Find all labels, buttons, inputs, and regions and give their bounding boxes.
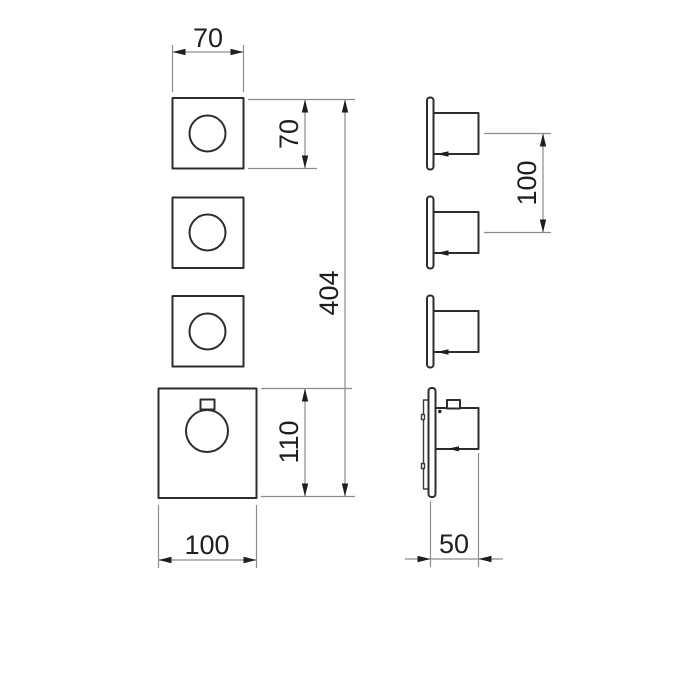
arrow-down-icon <box>540 220 546 233</box>
side-knob-body-1 <box>434 113 479 154</box>
side-thermostat-handle <box>422 388 479 497</box>
side-knob-body-3 <box>434 311 479 352</box>
main-plate <box>159 389 257 499</box>
dim-label-total-height: 404 <box>314 270 344 315</box>
arrow-down-icon <box>342 484 348 497</box>
dimension-handle-spacing: 100 <box>484 134 551 233</box>
side-main-plate <box>429 388 436 497</box>
arrow-down-icon <box>302 156 308 169</box>
side-knob-body-2 <box>434 212 479 253</box>
dim-label-small-plate-width: 70 <box>193 23 223 53</box>
dim-label-projection: 50 <box>439 529 469 559</box>
dimension-projection: 50 <box>405 453 503 567</box>
body-clip-top <box>422 415 425 420</box>
side-thermostat-body <box>436 408 479 449</box>
body-clip-bottom <box>422 464 425 469</box>
arrow-up-icon <box>342 100 348 113</box>
arrow-right-icon <box>418 556 431 562</box>
side-handle-3 <box>427 296 479 368</box>
side-view: 100 50 <box>405 98 551 568</box>
drawing-svg: 70 70 404 110 <box>0 0 700 700</box>
dimension-main-plate-width: 100 <box>159 505 257 568</box>
small-plate-2 <box>173 198 244 269</box>
arrow-left-icon <box>173 49 186 55</box>
arrow-up-icon <box>302 100 308 113</box>
arrow-left-icon <box>159 557 172 563</box>
arrow-up-icon <box>540 134 546 147</box>
side-handle-2 <box>427 197 479 269</box>
front-view: 70 70 404 110 <box>159 23 356 568</box>
dim-label-small-plate-height: 70 <box>274 119 304 149</box>
arrow-right-icon <box>231 49 244 55</box>
dimension-main-plate-height: 110 <box>261 389 352 497</box>
small-plate-1 <box>173 98 244 169</box>
technical-drawing-canvas: 70 70 404 110 <box>0 0 700 700</box>
arrow-up-icon <box>302 389 308 402</box>
side-handle-1 <box>427 98 479 170</box>
dimension-small-plate-height: 70 <box>248 100 355 169</box>
thermostat-dot-icon <box>438 410 441 413</box>
small-plate-3 <box>173 296 244 367</box>
dim-label-main-plate-height: 110 <box>274 420 304 463</box>
arrow-left-icon <box>479 556 492 562</box>
arrow-down-icon <box>302 484 308 497</box>
arrow-right-icon <box>244 557 257 563</box>
dim-label-handle-spacing: 100 <box>512 160 542 205</box>
thermostat-knob-tab <box>201 400 215 410</box>
side-thermostat-tab <box>447 400 460 409</box>
dim-label-main-plate-width: 100 <box>184 530 229 560</box>
dimension-small-plate-width: 70 <box>173 23 244 92</box>
